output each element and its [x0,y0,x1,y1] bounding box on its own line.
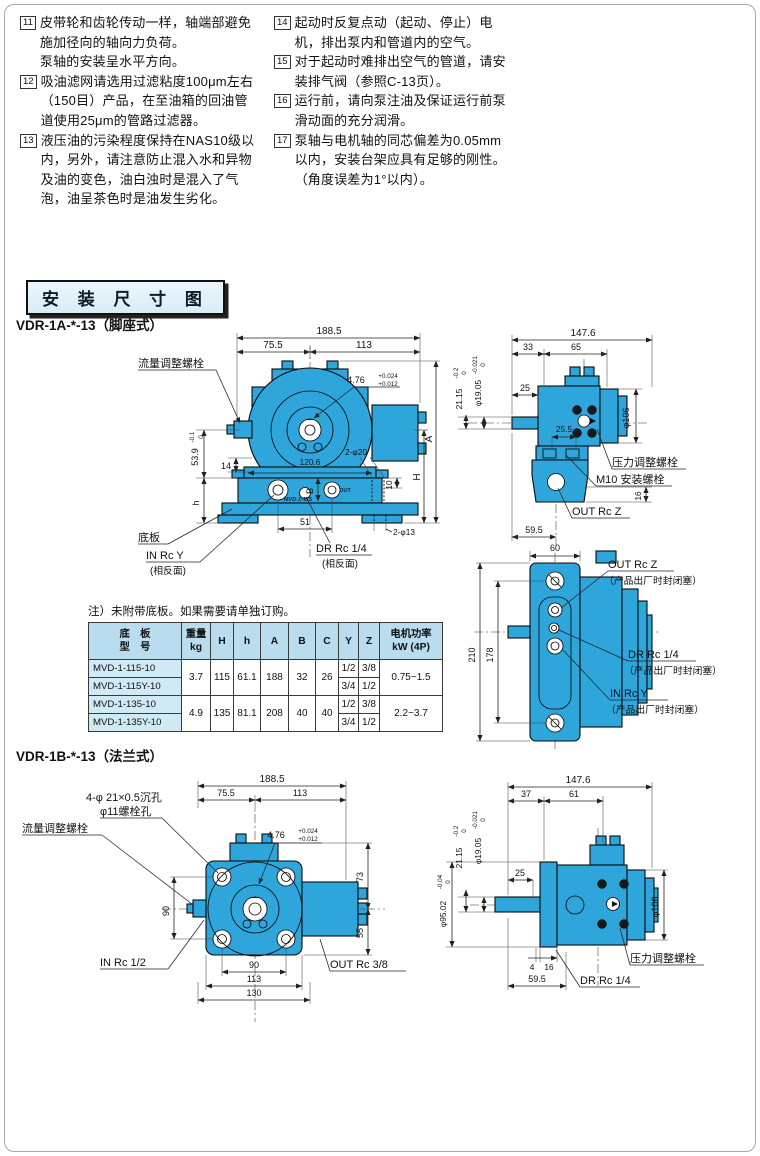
cell-model: MVD-1-115Y-10 [89,678,182,696]
counterbore-note-line1: 4-φ 21×0.5沉孔 [86,791,162,804]
subsection-title-vdr1b: VDR-1B-*-13（法兰式） [16,745,163,765]
cell-Z: 1/2 [359,678,380,696]
dim-51: 51 [300,517,310,527]
col-header-B: B [289,623,316,660]
dim-73: 73 [355,872,365,882]
in-port-label: IN Rc 1/2 [100,957,146,969]
dim-phi106: φ106 [621,408,631,429]
cell-Y: 3/4 [339,678,359,696]
note-number: 15 [274,55,291,69]
dim-phi19-05-lower-tol: -0.021 [472,356,479,374]
dim-75-5: 75.5 [217,788,235,798]
col-header-h: h [234,623,261,660]
dim-phi95-02: φ95.02 [438,901,448,928]
dim-60: 60 [550,543,560,553]
col-header-H: H [211,623,234,660]
col-header-power: 电机功率 kW (4P) [380,623,443,660]
note-number: 16 [274,94,291,108]
flow-adjust-bolt-label: 流量调整螺栓 [138,356,204,370]
pressure-adjust-bolt-label: 压力调整螺栓 [630,951,696,965]
front-view-drawing: OUT MVD-1-115 [218,345,430,557]
counterbore-note-line2: φ11螺栓孔 [100,804,152,818]
note-text: 运行前，请向泵注油及保证运行前泵滑动面的充分润滑。 [295,91,509,130]
cell-Y: 3/4 [339,714,359,732]
note-text: 吸油滤网请选用过滤粘度100μm左右（150目）产品，在至油箱的回油管道使用25… [41,72,255,131]
flange-front-view-drawing [162,814,385,1022]
dim-H: H [412,473,423,480]
dim-178: 178 [485,647,495,662]
dim-90-bottom: 90 [249,960,259,970]
dim-2-phi13: 2-φ13 [393,527,415,537]
flow-adjust-bolt-label: 流量调整螺栓 [22,821,88,835]
dim-53-9-lower-tol: -0.1 [189,431,196,442]
cell-Z: 3/8 [359,660,380,678]
dr-port-plug-note: （产品出厂时封闭塞） [624,664,722,677]
dim-59-5: 59.5 [525,525,543,535]
out-port-label: OUT Rc Z [572,506,622,518]
dim-16: 16 [633,491,643,501]
dim-25: 25 [520,383,530,393]
dim-10: 10 [384,480,394,490]
cell-h: 61.1 [234,660,261,696]
dim-37: 37 [521,789,531,799]
col-header-power-line1: 电机功率 [380,628,442,641]
in-port-plug-note: （产品出厂时封闭塞） [606,703,704,716]
cell-model: MVD-1-115-10 [89,660,182,678]
dim-4-76: 4.76 [267,830,285,840]
dim-phi106: φ106 [650,897,660,918]
note-item-17: 17 泵轴与电机轴的同芯偏差为0.05mm以内，安装台架应具有足够的刚性。（角度… [274,131,514,190]
cell-model: MVD-1-135Y-10 [89,714,182,732]
note-text: 对于起动时难排出空气的管道，请安装排气阀（参照C-13页）。 [295,52,509,91]
dim-4-76-upper-tol: +0.024 [298,828,318,835]
note-text: 皮带轮和齿轮传动一样，轴端部避免施加径向的轴向力负荷。 泵轴的安装呈水平方向。 [40,13,254,72]
dim-147-6: 147.6 [565,775,590,786]
cell-Z: 3/8 [359,696,380,714]
cell-H: 135 [211,696,234,732]
col-header-model-line2: 型 号 [89,641,181,654]
cell-B: 40 [289,696,316,732]
vdr-1b-dimension-drawing: 4-φ 21×0.5沉孔 φ11螺栓孔 流量调整螺栓 188.5 75.5 11… [0,772,760,1154]
note-number: 11 [20,16,36,30]
out-port-label: OUT Rc 3/8 [330,959,388,971]
dim-4-76-lower-tol: +0.012 [298,836,318,843]
m10-mounting-bolt-label: M10 安装螺栓 [596,472,664,486]
dr-port-label: DR Rc 1/4 [628,649,679,661]
col-header-C: C [316,623,339,660]
dim-21-15: 21.15 [454,388,464,409]
dim-h: h [191,500,201,505]
note-item-15: 15 对于起动时难排出空气的管道，请安装排气阀（参照C-13页）。 [274,52,514,91]
base-plate-label: 底板 [138,530,160,544]
dim-59-5: 59.5 [528,974,546,984]
cell-C: 40 [316,696,339,732]
cell-Y: 1/2 [339,696,359,714]
dim-113-bottom: 113 [247,974,261,984]
dr-port-label: DR Rc 1/4 [316,543,367,555]
cell-A: 208 [261,696,289,732]
dim-53-9: 53.9 [190,448,200,466]
side-view-drawing [468,359,650,547]
cell-H: 115 [211,660,234,696]
table-row: MVD-1-135-10 4.9 135 81.1 208 40 40 1/2 … [89,696,443,714]
dim-130: 130 [246,988,261,998]
col-header-model: 底 板 型 号 [89,623,182,660]
dim-4: 4 [530,962,535,972]
dim-65: 65 [571,342,581,352]
cell-weight: 3.7 [182,660,211,696]
dim-25-5: 25.5 [556,424,573,434]
cell-A: 188 [261,660,289,696]
col-header-Y: Y [339,623,359,660]
col-header-model-line1: 底 板 [89,628,181,641]
dim-16: 16 [544,962,554,972]
dim-188-5: 188.5 [316,326,341,337]
dim-B: B [305,488,315,494]
dim-phi19-05: φ19.05 [473,838,483,865]
dim-phi19-05: φ19.05 [473,380,483,407]
out-tag-label: OUT [339,488,351,494]
dim-120-6: 120.6 [300,457,321,467]
dim-14: 14 [221,461,231,471]
note-item-11: 11 皮带轮和齿轮传动一样，轴端部避免施加径向的轴向力负荷。 泵轴的安装呈水平方… [20,13,260,72]
cell-C: 26 [316,660,339,696]
dim-113: 113 [293,788,307,798]
col-header-weight-line1: 重量 [182,628,210,641]
note-text: 起动时反复点动（起动、停止）电机，排出泵内和管道内的空气。 [295,13,509,52]
dim-33: 33 [523,342,533,352]
notes-right-column: 14 起动时反复点动（起动、停止）电机，排出泵内和管道内的空气。 15 对于起动… [274,13,514,209]
base-plate-spec-table: 底 板 型 号 重量 kg H h A B C Y Z 电机功率 kW (4P) [88,622,443,732]
dim-25: 25 [515,868,525,878]
cell-Y: 1/2 [339,660,359,678]
cell-power: 0.75~1.5 [380,660,443,696]
dr-port-label: DR Rc 1/4 [580,975,631,987]
out-port-label: OUT Rc Z [608,559,658,571]
col-header-power-line2: kW (4P) [380,641,442,654]
dim-phi19-05-upper-tol: 0 [480,363,487,367]
note-text: 液压油的污染程度保持在NAS10级以内，另外，请注意防止混入水和异物及油的变色，… [41,131,255,209]
dim-113: 113 [356,340,372,351]
cell-power: 2.2~3.7 [380,696,443,732]
cell-h: 81.1 [234,696,261,732]
col-header-A: A [261,623,289,660]
note-number: 13 [20,134,37,148]
dim-210: 210 [467,647,477,662]
dim-4-76: 4.76 [347,375,365,385]
note-item-16: 16 运行前，请向泵注油及保证运行前泵滑动面的充分润滑。 [274,91,514,130]
note-item-12: 12 吸油滤网请选用过滤粘度100μm左右（150目）产品，在至油箱的回油管道使… [20,72,260,131]
col-header-weight-line2: kg [182,641,210,654]
dim-147-6: 147.6 [570,328,595,339]
cell-Z: 1/2 [359,714,380,732]
dim-75-5: 75.5 [263,340,283,351]
dim-53-9-upper-tol: 0 [198,435,205,439]
dim-4-76-upper-tol: +0.024 [378,373,398,380]
dim-55: 55 [355,928,365,938]
dim-A: A [424,435,435,442]
note-text: 泵轴与电机轴的同芯偏差为0.05mm以内，安装台架应具有足够的刚性。（角度误差为… [295,131,509,190]
note-item-14: 14 起动时反复点动（起动、停止）电机，排出泵内和管道内的空气。 [274,13,514,52]
note-number: 17 [274,134,291,148]
out-port-plug-note: （产品出厂时封闭塞） [604,574,702,587]
dim-90-vertical: 90 [161,906,171,916]
dim-188-5: 188.5 [259,774,284,785]
dim-21-15: 21.15 [454,847,464,868]
pressure-adjust-bolt-label: 压力调整螺栓 [612,455,678,469]
dim-21-15-lower-tol: -0.2 [453,825,460,836]
cell-model: MVD-1-135-10 [89,696,182,714]
table-row: MVD-1-115-10 3.7 115 61.1 188 32 26 1/2 … [89,660,443,678]
dim-21-15-lower-tol: -0.2 [453,367,460,378]
section-header-installation-dimensions: 安 装 尺 寸 图 [26,280,225,315]
col-header-Z: Z [359,623,380,660]
dim-phi95-02-upper-tol: 0 [445,880,452,884]
dim-phi95-02-lower-tol: -0.04 [437,874,444,889]
in-port-note: (相反面) [150,564,186,577]
note-item-13: 13 液压油的污染程度保持在NAS10级以内，另外，请注意防止混入水和异物及油的… [20,131,260,209]
dim-21-15-upper-tol: 0 [461,829,468,833]
dim-21-15-upper-tol: 0 [461,371,468,375]
dr-port-note: (相反面) [322,557,358,570]
note-number: 12 [20,75,37,89]
dim-phi19-05-lower-tol: -0.021 [472,811,479,829]
cell-weight: 4.9 [182,696,211,732]
table-note: 注）未附带底板。如果需要请单独订购。 [88,603,295,619]
in-port-label: IN Rc Y [146,550,184,562]
table-header-row: 底 板 型 号 重量 kg H h A B C Y Z 电机功率 kW (4P) [89,623,443,660]
dim-61: 61 [569,789,579,799]
in-port-label: IN Rc Y [610,688,648,700]
col-header-weight: 重量 kg [182,623,211,660]
notes-section: 11 皮带轮和齿轮传动一样，轴端部避免施加径向的轴向力负荷。 泵轴的安装呈水平方… [20,13,746,209]
cell-B: 32 [289,660,316,696]
dim-2-phi20: 2-φ20 [345,447,367,457]
dim-phi19-05-upper-tol: 0 [480,818,487,822]
catalog-page: 11 皮带轮和齿轮传动一样，轴端部避免施加径向的轴向力负荷。 泵轴的安装呈水平方… [0,0,760,1156]
notes-left-column: 11 皮带轮和齿轮传动一样，轴端部避免施加径向的轴向力负荷。 泵轴的安装呈水平方… [20,13,260,209]
note-number: 14 [274,16,291,30]
